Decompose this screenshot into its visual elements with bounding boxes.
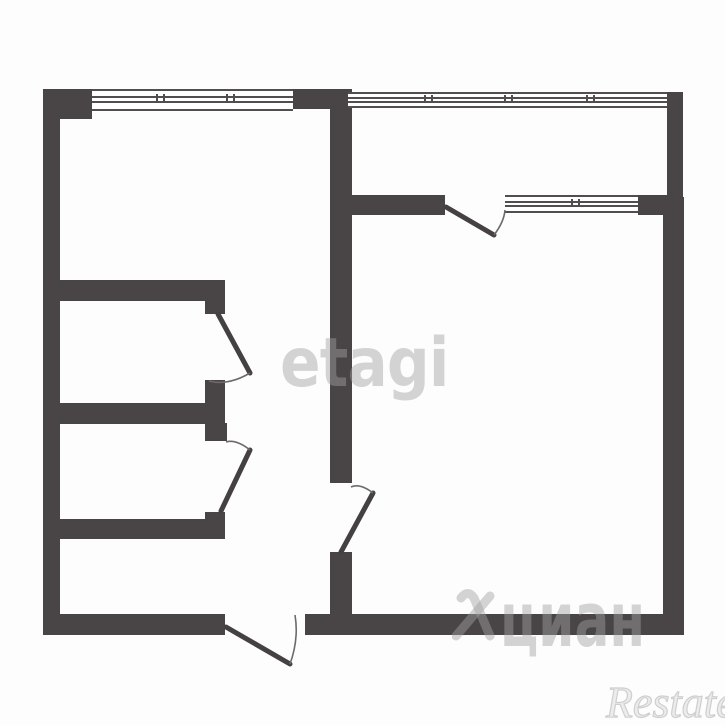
door-bathroom: [209, 314, 250, 382]
door-living-room: [341, 486, 373, 552]
floorplan-image: etagi циан Restate: [0, 0, 725, 725]
cian-logo-icon: [452, 588, 498, 642]
door-balcony: [446, 207, 505, 235]
etagi-watermark: etagi: [280, 330, 449, 398]
restate-watermark: Restate: [606, 680, 725, 725]
cian-watermark: циан: [452, 582, 713, 658]
door-entrance: [226, 615, 296, 664]
door-toilet: [221, 441, 250, 511]
cian-watermark-text: циан: [500, 582, 645, 658]
